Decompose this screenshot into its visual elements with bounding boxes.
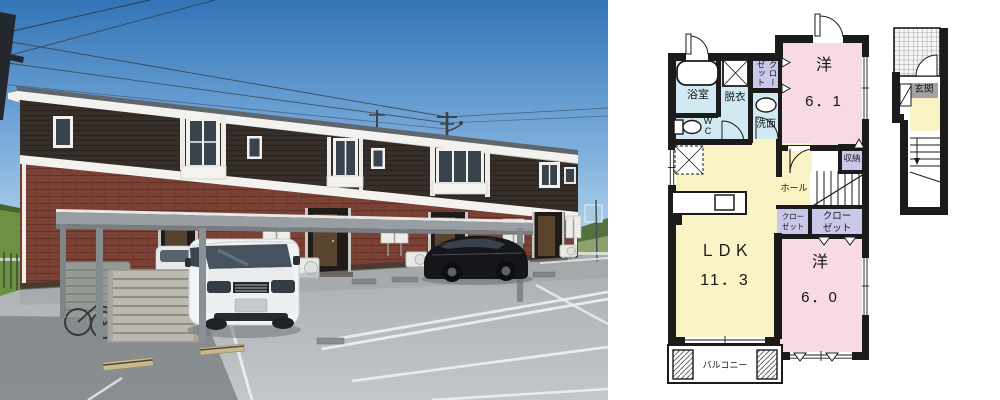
label-room1-name: 洋 (802, 57, 846, 75)
label-ldk-size: 11．3 (682, 272, 768, 290)
label-closet-upper: クローゼット (755, 60, 779, 90)
window-small-end (53, 116, 73, 148)
label-storage: 収納 (838, 154, 866, 164)
window-bay1 (181, 117, 226, 179)
label-room2-name: 洋 (798, 254, 842, 272)
entrance-section (892, 28, 948, 215)
label-dressing: 脱衣 (713, 91, 757, 103)
stairs-upper (810, 171, 864, 209)
property-photo (0, 0, 608, 400)
sink-icon (756, 98, 776, 112)
floor-plan: 浴室 脱衣 クローゼット 洗面 W C 洋 6．1 収納 ホール クロー ゼット… (660, 0, 960, 400)
van-mirror (185, 258, 191, 267)
bathtub-icon (677, 61, 718, 85)
label-room2-size: 6．0 (783, 289, 857, 306)
window-small-4 (564, 167, 576, 184)
label-washstand: 洗面 (744, 119, 788, 131)
label-entrance: 玄関 (908, 85, 940, 96)
van-license-plate (235, 299, 267, 312)
grass-strip (0, 204, 20, 296)
listing-image: 浴室 脱衣 クローゼット 洗面 W C 洋 6．1 収納 ホール クロー ゼット… (0, 0, 1000, 400)
stairs-lower (910, 131, 940, 182)
entrance-hall-floor (910, 98, 940, 131)
photo-canvas (0, 0, 608, 400)
refrigerator-space-icon (675, 146, 703, 174)
washing-machine-icon (723, 60, 748, 86)
label-closet-large: クロー ゼット (810, 211, 864, 234)
label-balcony: バルコニー (682, 360, 768, 370)
carport-post (60, 224, 66, 318)
label-ldk-name: ＬＤＫ (682, 243, 768, 261)
window-small-1 (247, 136, 262, 159)
kitchen-counter-icon (672, 192, 746, 214)
van-headlight (207, 281, 231, 293)
window-small-2 (371, 148, 385, 169)
label-hall: ホール (774, 183, 814, 193)
window-small-3 (539, 162, 560, 188)
label-wc: W C (697, 116, 719, 136)
window-bay3 (432, 148, 487, 194)
label-closet-small: クロー ゼット (776, 212, 810, 231)
label-room1-size: 6．1 (787, 93, 861, 110)
